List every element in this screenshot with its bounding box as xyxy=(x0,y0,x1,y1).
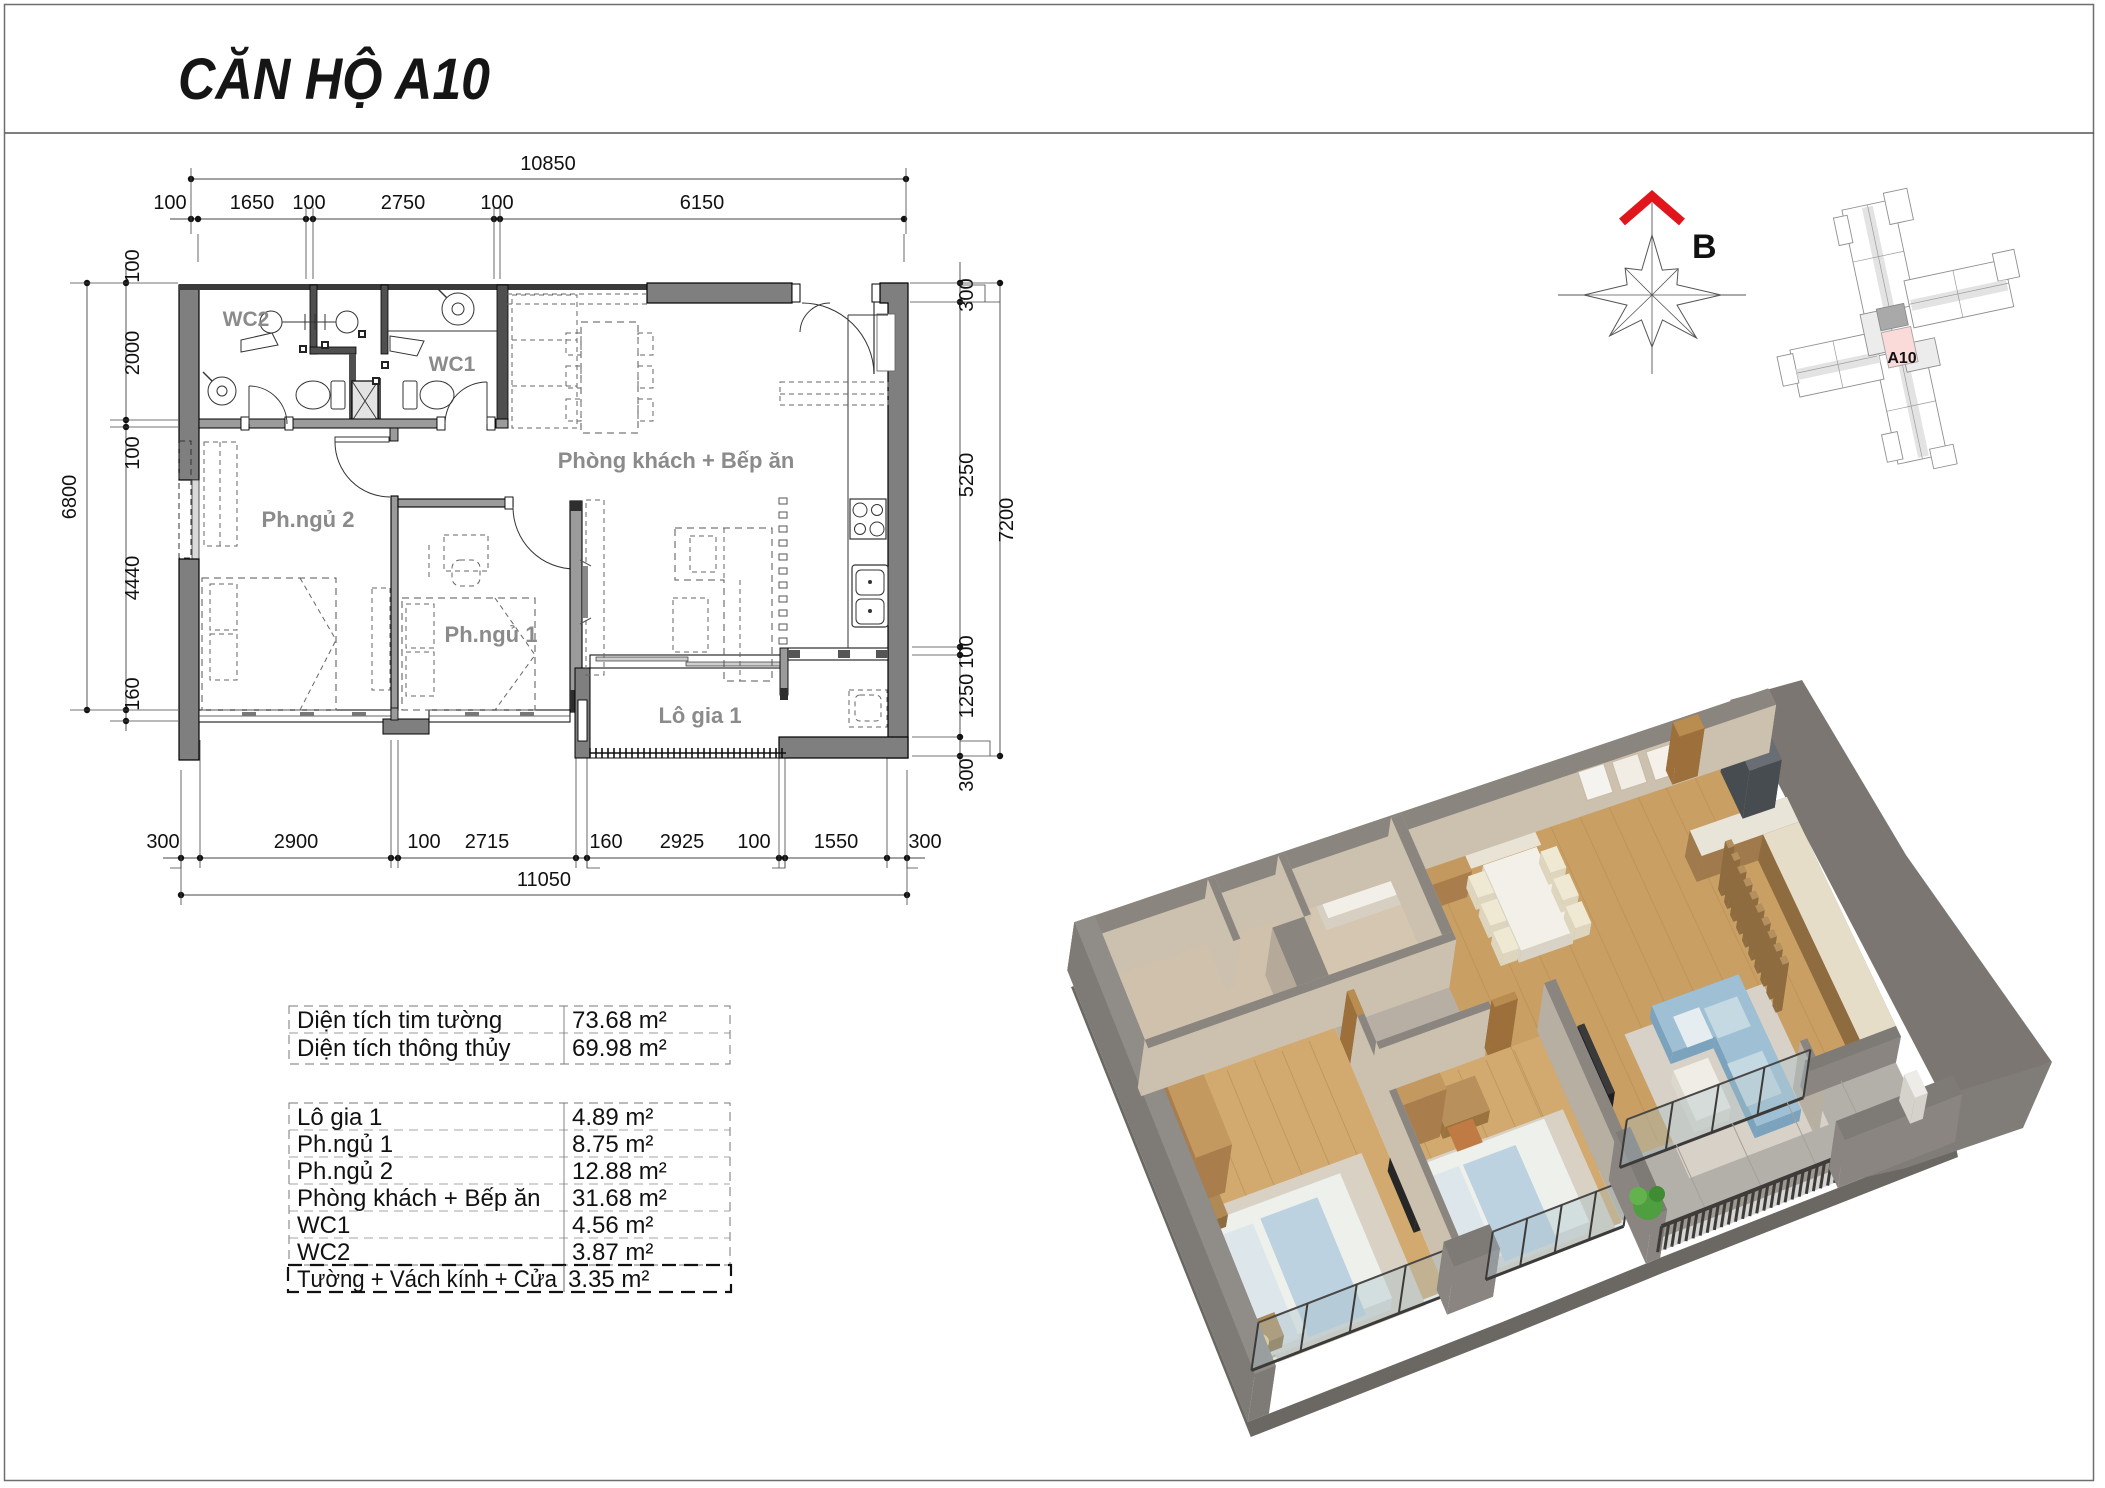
svg-text:A10: A10 xyxy=(1887,350,1916,367)
svg-text:Phòng khách + Bếp ăn: Phòng khách + Bếp ăn xyxy=(558,448,795,473)
svg-text:100: 100 xyxy=(292,192,325,214)
svg-text:100: 100 xyxy=(480,192,513,214)
svg-text:11050: 11050 xyxy=(517,869,571,891)
svg-text:100: 100 xyxy=(122,249,144,282)
svg-text:100: 100 xyxy=(407,831,440,853)
svg-text:Phòng khách + Bếp ăn: Phòng khách + Bếp ăn xyxy=(297,1185,541,1212)
svg-text:2925: 2925 xyxy=(660,831,705,853)
svg-text:1550: 1550 xyxy=(814,831,859,853)
svg-text:31.68 m²: 31.68 m² xyxy=(572,1185,667,1212)
svg-text:B: B xyxy=(1692,228,1717,266)
svg-text:Ph.ngủ 2: Ph.ngủ 2 xyxy=(297,1158,393,1185)
svg-text:4.89 m²: 4.89 m² xyxy=(572,1104,653,1131)
svg-text:Lô gia 1: Lô gia 1 xyxy=(297,1104,382,1131)
svg-text:100: 100 xyxy=(956,635,978,668)
svg-text:12.88 m²: 12.88 m² xyxy=(572,1158,667,1185)
svg-text:73.68 m²: 73.68 m² xyxy=(572,1007,667,1034)
svg-text:WC2: WC2 xyxy=(223,308,270,331)
svg-text:Diện tích thông thủy: Diện tích thông thủy xyxy=(297,1035,510,1062)
svg-text:6150: 6150 xyxy=(680,192,725,214)
svg-text:WC2: WC2 xyxy=(297,1239,350,1266)
svg-text:100: 100 xyxy=(737,831,770,853)
svg-text:7200: 7200 xyxy=(996,498,1018,543)
svg-text:10850: 10850 xyxy=(520,153,576,175)
svg-text:100: 100 xyxy=(122,436,144,469)
svg-text:2715: 2715 xyxy=(465,831,510,853)
svg-text:CĂN HỘ A10: CĂN HỘ A10 xyxy=(178,47,490,112)
svg-text:4.56 m²: 4.56 m² xyxy=(572,1212,653,1239)
svg-text:2000: 2000 xyxy=(122,331,144,376)
svg-text:Ph.ngủ 1: Ph.ngủ 1 xyxy=(445,622,538,647)
svg-text:WC1: WC1 xyxy=(429,353,476,376)
svg-text:300: 300 xyxy=(956,758,978,791)
svg-text:1250: 1250 xyxy=(956,674,978,719)
svg-text:Ph.ngủ 1: Ph.ngủ 1 xyxy=(297,1131,393,1158)
svg-text:3.87 m²: 3.87 m² xyxy=(572,1239,653,1266)
svg-text:3.35 m²: 3.35 m² xyxy=(568,1266,649,1293)
svg-text:300: 300 xyxy=(146,831,179,853)
svg-text:4440: 4440 xyxy=(122,556,144,601)
svg-text:2900: 2900 xyxy=(274,831,319,853)
svg-text:6800: 6800 xyxy=(59,475,81,520)
svg-text:Lô gia 1: Lô gia 1 xyxy=(658,703,741,728)
svg-text:1650: 1650 xyxy=(230,192,275,214)
svg-text:300: 300 xyxy=(908,831,941,853)
svg-text:160: 160 xyxy=(589,831,622,853)
svg-text:Diện tích tim tường: Diện tích tim tường xyxy=(297,1007,502,1034)
svg-text:100: 100 xyxy=(153,192,186,214)
svg-text:69.98 m²: 69.98 m² xyxy=(572,1035,667,1062)
svg-text:Tường + Vách kính + Cửa: Tường + Vách kính + Cửa xyxy=(297,1266,558,1293)
svg-text:2750: 2750 xyxy=(381,192,426,214)
svg-text:160: 160 xyxy=(122,677,144,710)
svg-text:5250: 5250 xyxy=(956,453,978,498)
svg-text:WC1: WC1 xyxy=(297,1212,350,1239)
svg-text:8.75 m²: 8.75 m² xyxy=(572,1131,653,1158)
svg-text:Ph.ngủ 2: Ph.ngủ 2 xyxy=(262,507,355,532)
